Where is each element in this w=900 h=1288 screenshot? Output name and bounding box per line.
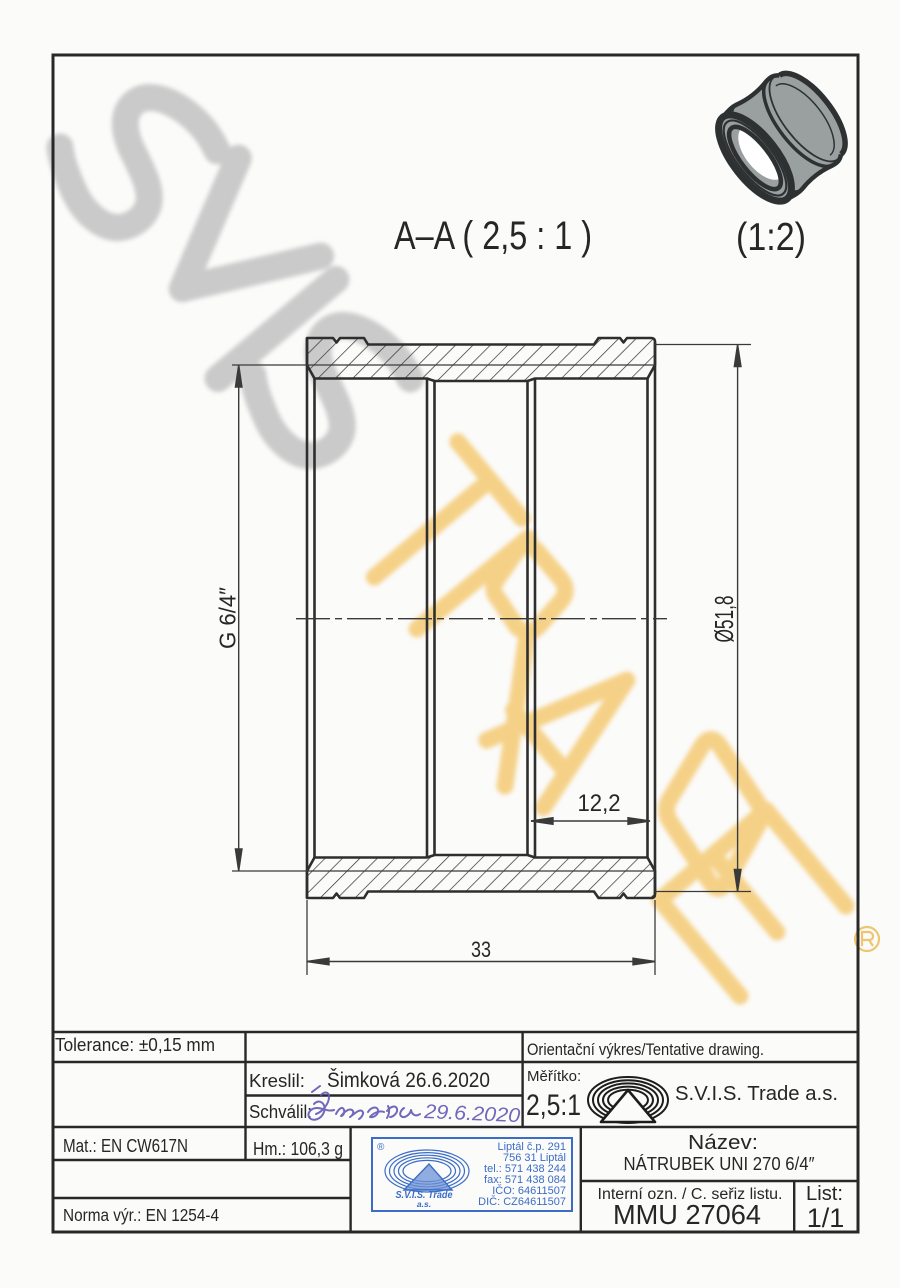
svg-text:Šimková 26.6.2020: Šimková 26.6.2020: [327, 1069, 490, 1092]
svg-text:Schválil:: Schválil:: [249, 1102, 312, 1122]
svg-text:1/1: 1/1: [807, 1203, 845, 1233]
svg-text:Orientační výkres/Tentative dr: Orientační výkres/Tentative drawing.: [527, 1041, 764, 1059]
svg-text:Kreslil:: Kreslil:: [249, 1071, 305, 1091]
svg-text:NÁTRUBEK UNI 270 6/4″: NÁTRUBEK UNI 270 6/4″: [624, 1154, 816, 1174]
svg-text:Ø51,8: Ø51,8: [709, 596, 739, 643]
svg-text:Tolerance: ±0,15 mm: Tolerance: ±0,15 mm: [55, 1035, 215, 1055]
svg-text:Mat.: EN CW617N: Mat.: EN CW617N: [63, 1136, 188, 1156]
svg-text:Hm.: 106,3 g: Hm.: 106,3 g: [253, 1139, 343, 1159]
svg-text:a.s.: a.s.: [417, 1199, 431, 1209]
svg-text:Měřítko:: Měřítko:: [527, 1068, 581, 1085]
svg-text:12,2: 12,2: [578, 790, 621, 817]
svg-text:G 6/4″: G 6/4″: [215, 587, 241, 649]
svg-text:Název:: Název:: [688, 1132, 758, 1154]
svg-text:33: 33: [471, 937, 491, 962]
svg-text:A–A ( 2,5 : 1 ): A–A ( 2,5 : 1 ): [394, 214, 592, 258]
svg-text:®: ®: [377, 1142, 385, 1153]
svg-text:(1:2): (1:2): [736, 216, 806, 259]
svg-text:MMU 27064: MMU 27064: [613, 1199, 761, 1230]
svg-text:2,5:1: 2,5:1: [526, 1089, 581, 1122]
svg-text:S.V.I.S. Trade a.s.: S.V.I.S. Trade a.s.: [675, 1083, 838, 1105]
svg-text:Norma výr.: EN 1254-4: Norma výr.: EN 1254-4: [63, 1205, 219, 1225]
svg-text:29.6.2020: 29.6.2020: [423, 1101, 521, 1127]
svg-text:List:: List:: [806, 1183, 843, 1205]
svg-text:DIČ: CZ64611507: DIČ: CZ64611507: [478, 1195, 566, 1208]
